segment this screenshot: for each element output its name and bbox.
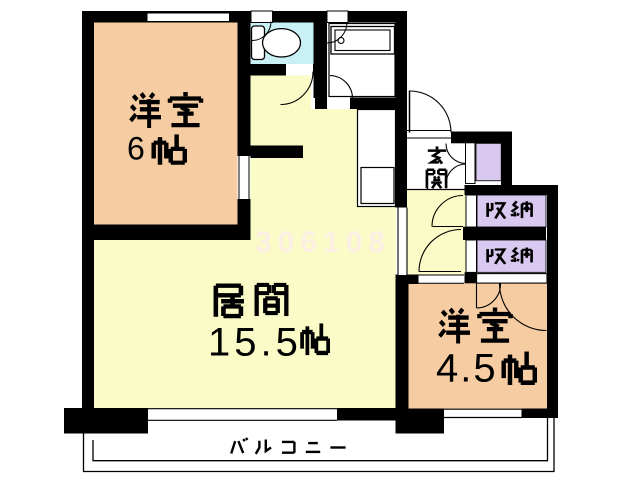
svg-text:15.5: 15.5 xyxy=(208,321,302,365)
svg-text:6: 6 xyxy=(127,131,145,167)
svg-text:4.5: 4.5 xyxy=(436,347,498,391)
svg-text:306108: 306108 xyxy=(255,226,391,259)
